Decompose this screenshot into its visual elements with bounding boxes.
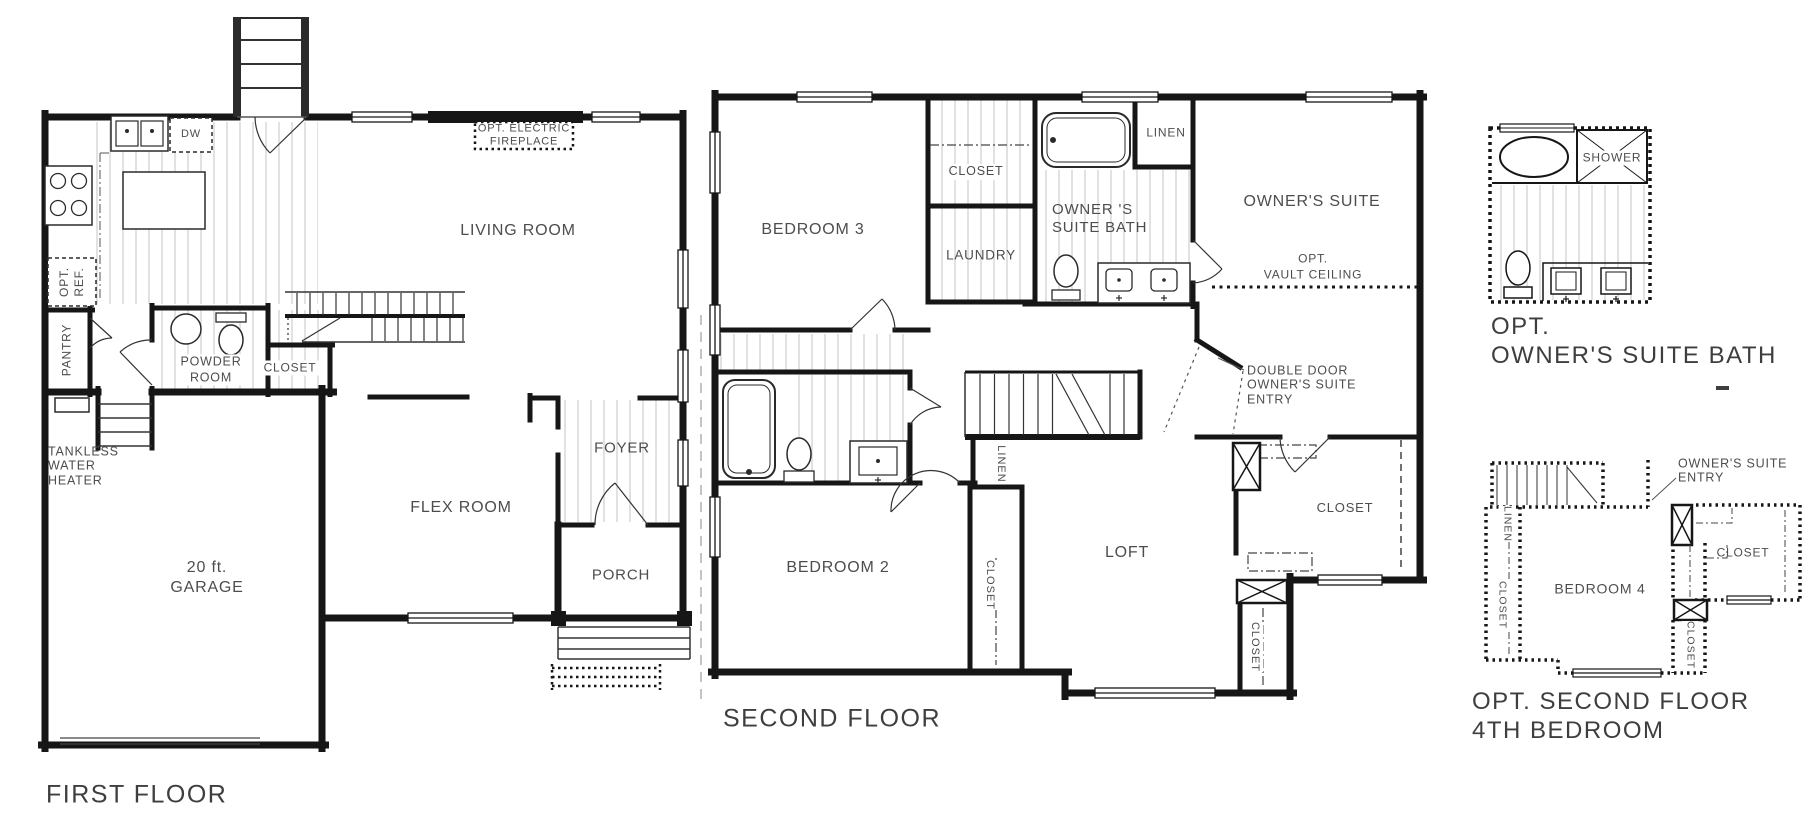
label-linen-bedroom4: LINEN [1498, 506, 1515, 542]
label-opt-vault-ceiling: OPT. VAULT CEILING [1264, 251, 1362, 282]
label-closet-bedroom2: CLOSET [980, 560, 998, 610]
label-powder-room: POWDER ROOM [178, 354, 243, 385]
label-closet-bedroom4-left: CLOSET [1493, 581, 1510, 629]
label-owners-suite-bath: OWNER 'S SUITE BATH [1052, 201, 1147, 237]
label-linen-hall: LINEN [991, 445, 1009, 482]
label-closet-owners: CLOSET [1317, 500, 1374, 516]
label-opt-ref: OPT. REF. [57, 267, 87, 297]
label-closet-bedroom4-right: CLOSET [1717, 546, 1770, 561]
label-garage: 20 ft. GARAGE [170, 558, 243, 598]
label-double-door-entry: DOUBLE DOOR OWNER'S SUITE ENTRY [1247, 363, 1356, 406]
label-owners-suite-entry: OWNER'S SUITE ENTRY [1678, 457, 1787, 486]
label-linen-upper: LINEN [1146, 126, 1185, 141]
label-tankless-water-heater: TANKLESS WATER HEATER [48, 444, 119, 487]
first-floor-title: FIRST FLOOR [46, 779, 227, 810]
label-pantry: PANTRY [60, 324, 75, 376]
opt-bedroom4-title: OPT. SECOND FLOOR 4TH BEDROOM [1472, 688, 1750, 746]
second-floor-title: SECOND FLOOR [723, 703, 941, 734]
label-bedroom2: BEDROOM 2 [786, 558, 889, 578]
label-flex-room: FLEX ROOM [410, 498, 511, 518]
label-shower: SHOWER [1581, 151, 1644, 166]
label-living-room: LIVING ROOM [460, 221, 575, 241]
opt-owners-bath-title: OPT. OWNER'S SUITE BATH [1491, 313, 1777, 371]
label-opt-fireplace: OPT. ELECTRIC FIREPLACE [478, 122, 570, 147]
label-porch: PORCH [592, 567, 650, 586]
label-foyer: FOYER [594, 440, 650, 459]
label-owners-suite: OWNER'S SUITE [1243, 192, 1380, 212]
label-bedroom4: BEDROOM 4 [1554, 580, 1645, 598]
label-closet-upper: CLOSET [947, 164, 1006, 180]
label-closet-first-floor: CLOSET [262, 361, 319, 376]
label-laundry: LAUNDRY [946, 248, 1016, 265]
label-closet-bedroom4-center: CLOSET [1681, 621, 1698, 669]
label-dishwasher: DW [181, 128, 201, 142]
label-closet-hall: CLOSET [1245, 622, 1263, 672]
floor-plan-page: { "colors": { "wall": "#161616", "label"… [0, 0, 1818, 832]
label-bedroom3: BEDROOM 3 [761, 220, 864, 240]
label-loft: LOFT [1105, 543, 1149, 563]
labels-layer: LIVING ROOM FLEX ROOM 20 ft. GARAGE FOYE… [0, 0, 1818, 832]
